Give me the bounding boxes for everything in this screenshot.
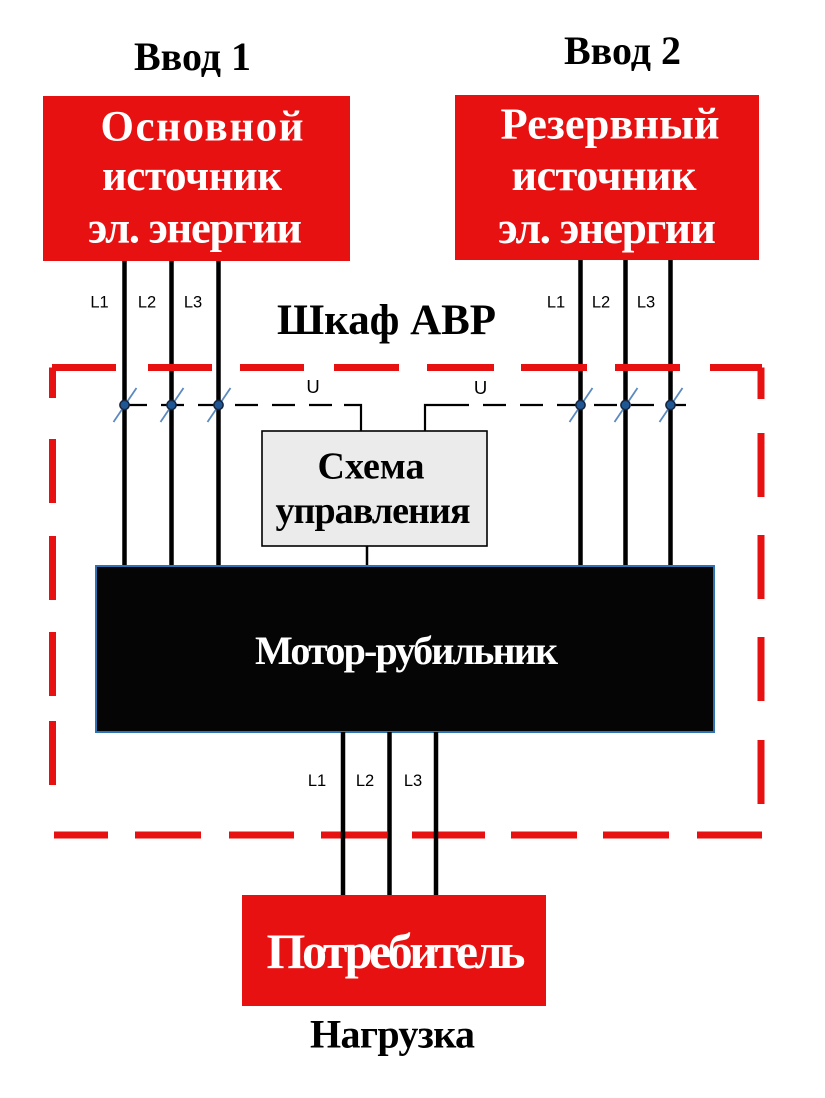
svg-text:эл. энергии: эл. энергии xyxy=(88,203,302,253)
svg-text:L1: L1 xyxy=(547,294,565,312)
svg-text:L1: L1 xyxy=(308,772,326,790)
svg-text:U: U xyxy=(306,376,319,397)
svg-text:L2: L2 xyxy=(356,772,374,790)
svg-text:Мотор-рубильник: Мотор-рубильник xyxy=(255,628,558,673)
svg-text:Шкаф АВР: Шкаф АВР xyxy=(277,297,496,344)
svg-text:L2: L2 xyxy=(138,294,156,312)
svg-text:L3: L3 xyxy=(637,294,655,312)
svg-text:L1: L1 xyxy=(90,294,108,312)
svg-text:Схема: Схема xyxy=(318,446,425,488)
svg-text:Ввод 1: Ввод 1 xyxy=(134,34,251,79)
svg-text:L3: L3 xyxy=(184,294,202,312)
svg-text:управления: управления xyxy=(276,490,471,532)
svg-text:эл. энергии: эл. энергии xyxy=(498,202,716,253)
svg-text:L2: L2 xyxy=(592,294,610,312)
svg-text:источник: источник xyxy=(512,150,697,200)
svg-text:Ввод 2: Ввод 2 xyxy=(564,28,681,73)
svg-text:Основной: Основной xyxy=(101,104,304,151)
svg-text:источник: источник xyxy=(102,153,282,200)
svg-text:Резервный: Резервный xyxy=(501,99,720,149)
svg-text:U: U xyxy=(474,377,487,398)
svg-text:Потребитель: Потребитель xyxy=(267,923,526,979)
svg-text:Нагрузка: Нагрузка xyxy=(310,1012,475,1057)
svg-text:L3: L3 xyxy=(404,772,422,790)
